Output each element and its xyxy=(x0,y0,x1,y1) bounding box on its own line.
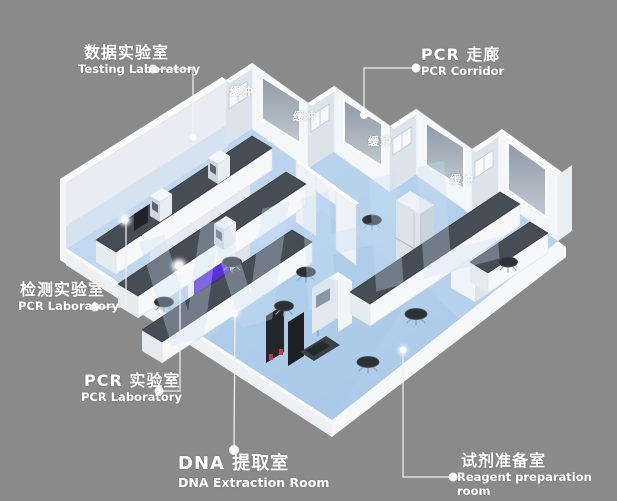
label-dna-extraction-room-zh: DNA 提取室 xyxy=(178,454,329,475)
label-pcr-laboratory-en: PCR Laboratory xyxy=(81,391,182,404)
label-reagent-preparation-room: 试剂准备室 Reagent preparation room xyxy=(457,452,617,498)
label-pcr-laboratory-zh: PCR 实验室 xyxy=(84,372,182,390)
label-detection-laboratory-en: PCR Laboratory xyxy=(18,300,119,313)
label-reagent-preparation-room-en: Reagent preparation room xyxy=(457,471,617,497)
buffer-room-tag-4: 缓冲 xyxy=(450,171,474,187)
label-pcr-corridor-zh: PCR 走廊 xyxy=(421,46,504,64)
label-testing-laboratory-zh: 数据实验室 xyxy=(84,44,200,62)
label-dna-extraction-room-en: DNA Extraction Room xyxy=(178,476,329,490)
label-pcr-corridor: PCR 走廊 PCR Corridor xyxy=(421,46,504,79)
label-pcr-laboratory: PCR 实验室 PCR Laboratory xyxy=(81,372,182,405)
label-pcr-corridor-en: PCR Corridor xyxy=(421,65,504,78)
lab-floorplan-screenshot: WHL xyxy=(0,0,617,501)
label-detection-laboratory: 检测实验室 PCR Laboratory xyxy=(18,281,119,314)
buffer-room-tag-3: 缓冲 xyxy=(368,133,392,149)
label-detection-laboratory-zh: 检测实验室 xyxy=(20,281,119,299)
label-testing-laboratory: 数据实验室 Testing Laboratory xyxy=(78,44,200,77)
buffer-room-tag-1: 缓冲 xyxy=(230,83,254,99)
label-dna-extraction-room: DNA 提取室 DNA Extraction Room xyxy=(178,454,329,490)
buffer-room-tag-2: 缓冲 xyxy=(293,108,317,124)
label-reagent-preparation-room-zh: 试剂准备室 xyxy=(461,452,617,470)
label-testing-laboratory-en: Testing Laboratory xyxy=(78,63,200,76)
